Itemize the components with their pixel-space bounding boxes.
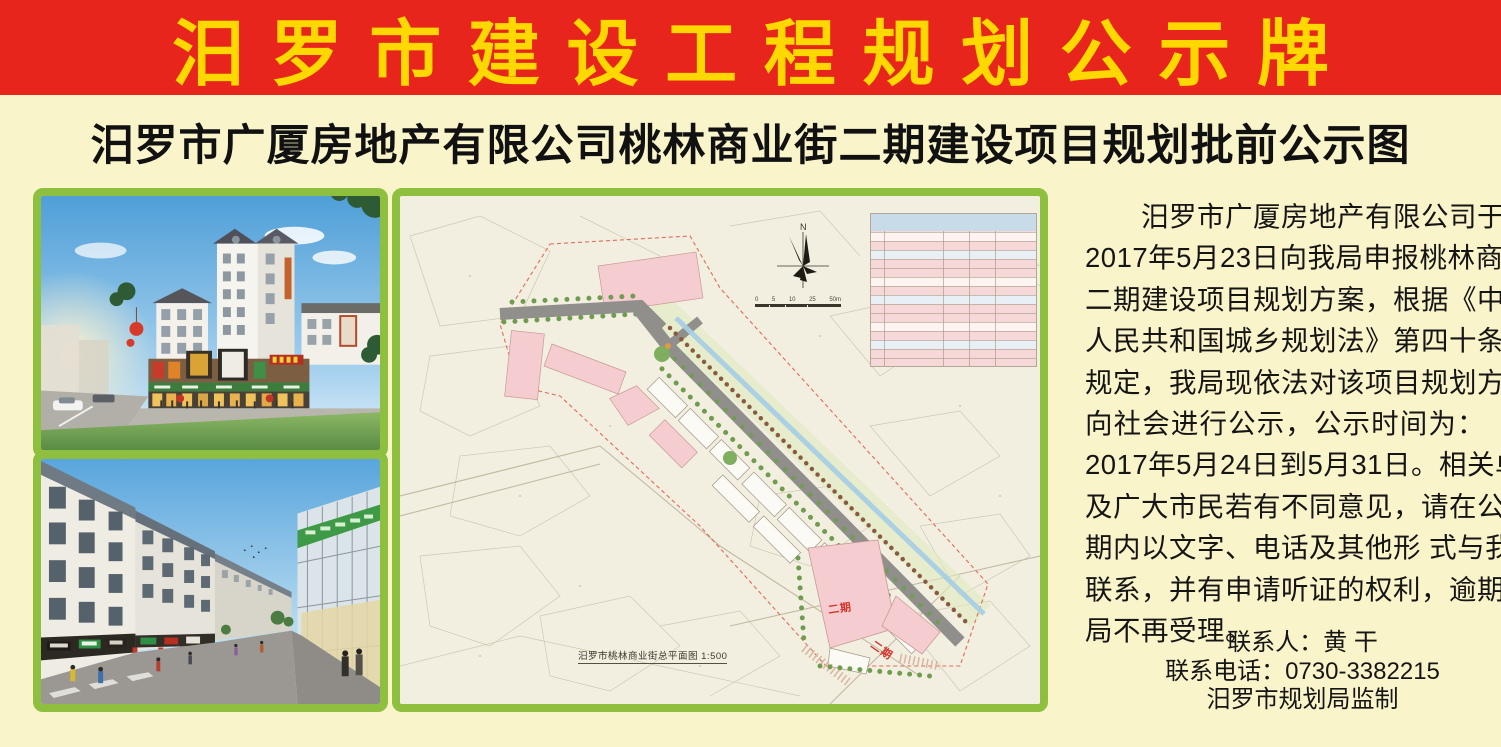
- banner-title: 汨罗市建设工程规划公示牌: [145, 0, 1355, 100]
- project-subtitle: 汨罗市广厦房地产有限公司桃林商业街二期建设项目规划批前公示图: [0, 95, 1501, 188]
- rendering-photo-1: [33, 188, 388, 458]
- contact-person: 联系人：黄 干: [1120, 629, 1485, 658]
- rendering-1-graphic: [41, 196, 380, 450]
- notice-line: 联系，并有申请听证的权利，逾期我: [1085, 569, 1485, 610]
- site-plan-panel: N 05102550m 二期 二期: [392, 188, 1048, 712]
- contact-block: 联系人：黄 干 联系电话：0730-3382215 汨罗市规划局监制: [1120, 629, 1485, 715]
- notice-line: 规定，我局现依法对该项目规划方案: [1085, 362, 1485, 403]
- rendering-photo-2: [33, 451, 388, 712]
- issuer: 汨罗市规划局监制: [1120, 686, 1485, 715]
- banner: 汨罗市建设工程规划公示牌: [0, 0, 1501, 95]
- contact-phone: 联系电话：0730-3382215: [1120, 658, 1485, 687]
- notice-line: 2017年5月23日向我局申报桃林商业街: [1085, 237, 1485, 278]
- rendering-2-graphic: [41, 459, 380, 704]
- notice-line: 汨罗市广厦房地产有限公司于: [1085, 196, 1485, 237]
- phase-label: 二期: [827, 598, 853, 617]
- notice-line: 期内以文字、电话及其他形 式与我局: [1085, 527, 1485, 568]
- plan-caption: 汨罗市桃林商业街总平面图 1:500: [578, 648, 727, 664]
- indicator-table: [870, 213, 1037, 367]
- notice-line: 2017年5月24日到5月31日。相关单位: [1085, 444, 1485, 485]
- notice-line: 及广大市民若有不同意见，请在公示: [1085, 486, 1485, 527]
- north-arrow-icon: N: [772, 218, 832, 298]
- svg-text:N: N: [800, 222, 807, 232]
- notice-line: 二期建设项目规划方案，根据《中华: [1085, 279, 1485, 320]
- scale-bar: 05102550m: [755, 297, 841, 313]
- notice-board: 汨罗市建设工程规划公示牌 汨罗市广厦房地产有限公司桃林商业街二期建设项目规划批前…: [0, 0, 1501, 747]
- notice-line: 人民共和国城乡规划法》第四十条之: [1085, 320, 1485, 361]
- notice-text: 汨罗市广厦房地产有限公司于 2017年5月23日向我局申报桃林商业街 二期建设项…: [1085, 196, 1485, 651]
- notice-line: 向社会进行公示，公示时间为：: [1085, 403, 1485, 444]
